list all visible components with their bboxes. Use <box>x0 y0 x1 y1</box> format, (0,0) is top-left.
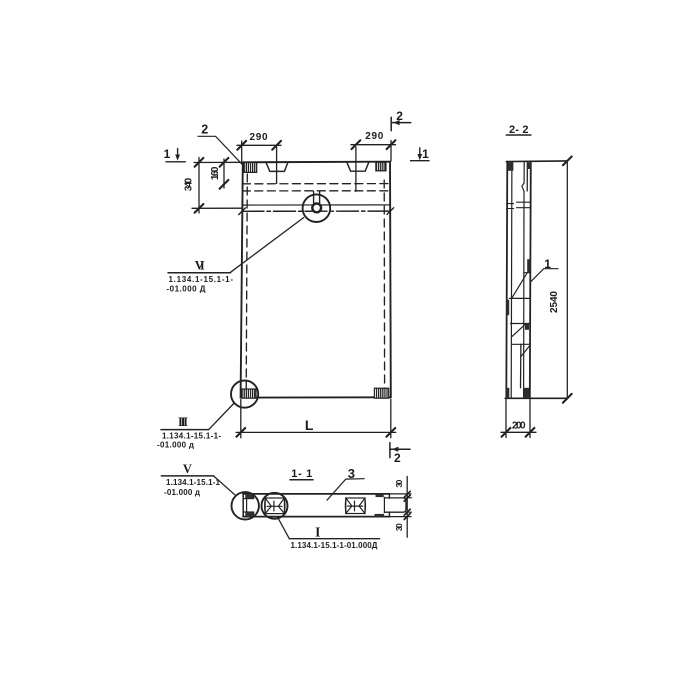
svg-text:290: 290 <box>250 132 268 143</box>
svg-text:30: 30 <box>394 479 404 487</box>
svg-text:160: 160 <box>210 166 221 180</box>
svg-text:-01.000 д: -01.000 д <box>157 441 194 450</box>
svg-text:340: 340 <box>183 177 194 191</box>
svg-text:30: 30 <box>394 523 404 531</box>
svg-text:1- 1: 1- 1 <box>291 468 312 480</box>
svg-text:2540: 2540 <box>549 291 560 313</box>
svg-text:L: L <box>305 417 314 433</box>
svg-text:3: 3 <box>348 466 355 481</box>
svg-text:1.134.1-15.1-1-: 1.134.1-15.1-1- <box>162 431 221 440</box>
svg-text:200: 200 <box>512 421 526 432</box>
svg-text:-01.000 д: -01.000 д <box>164 488 200 497</box>
svg-text:1: 1 <box>422 147 429 161</box>
svg-text:-01.000 Д: -01.000 Д <box>167 285 206 294</box>
svg-text:1: 1 <box>544 257 551 271</box>
svg-text:VI: VI <box>195 259 205 273</box>
svg-text:I: I <box>315 524 320 539</box>
svg-text:1.134.1-15.1-1-01.000Д: 1.134.1-15.1-1-01.000Д <box>291 541 378 550</box>
svg-text:1.134.1-15.1-1-: 1.134.1-15.1-1- <box>169 275 234 284</box>
svg-text:III: III <box>178 415 188 429</box>
svg-text:2: 2 <box>396 109 403 123</box>
svg-text:2: 2 <box>394 451 401 465</box>
svg-text:2: 2 <box>201 122 208 136</box>
svg-text:290: 290 <box>365 131 383 142</box>
svg-text:1.134.1-15.1-1: 1.134.1-15.1-1 <box>166 478 221 487</box>
svg-text:1: 1 <box>164 147 171 161</box>
svg-text:2- 2: 2- 2 <box>509 124 529 136</box>
svg-text:V: V <box>183 462 192 476</box>
